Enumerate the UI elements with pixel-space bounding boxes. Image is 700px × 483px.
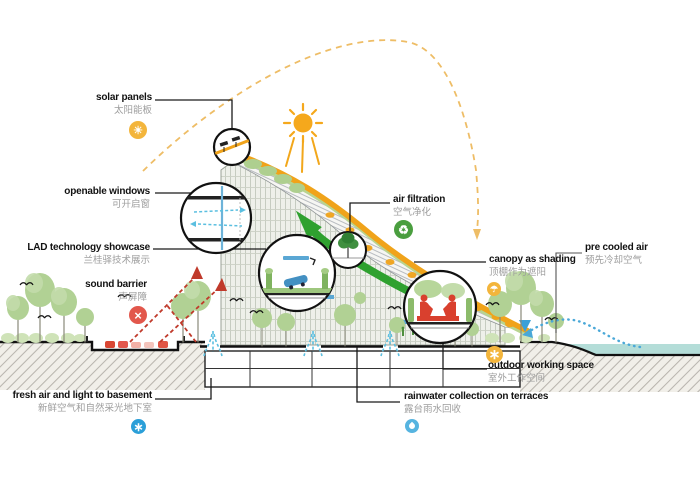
cars [105, 341, 168, 348]
sound-barrier-icon: × [129, 306, 147, 324]
detail-circle-windows [181, 183, 251, 253]
label-rainwater: rainwater collection on terraces 露台雨水回收 [404, 391, 548, 415]
label-canopy-shading: canopy as shading 顶棚作为遮阳 [489, 254, 576, 278]
droplet-shape [408, 422, 416, 430]
detail-circle-canopy [404, 271, 476, 343]
raindrop-icon [405, 419, 419, 433]
label-openable-windows: openable windows 可开启窗 [10, 186, 150, 210]
canopy-icon: ☂ [487, 282, 501, 296]
outdoor-working-icon: ∗ [486, 346, 503, 363]
sun-rays [286, 138, 319, 172]
solar-icon: ☀ [129, 121, 147, 139]
sun-icon [284, 104, 322, 172]
air-filtration-icon: ♻ [394, 220, 413, 239]
label-solar-panels: solar panels 太阳能板 [10, 92, 152, 116]
label-lad-showcase: LAD technology showcase 兰桂驿技术展示 [0, 242, 150, 266]
detail-circle-filtration [330, 232, 366, 268]
fresh-air-icon: ∗ [131, 419, 146, 434]
label-air-filtration: air filtration 空气净化 [393, 194, 445, 218]
detail-circle-solar [214, 129, 250, 165]
label-fresh-air-basement: fresh air and light to basement 新鲜空气和自然采… [0, 390, 152, 414]
label-outdoor-working: outdoor working space 室外工作空间 [488, 360, 594, 384]
architecture-section-diagram: solar panels 太阳能板 openable windows 可开启窗 … [0, 0, 700, 483]
basement [200, 347, 520, 388]
label-pre-cooled-air: pre cooled air 预先冷却空气 [585, 242, 648, 266]
label-sound-barrier: sound barrier 声屏障 [10, 279, 147, 303]
detail-circle-showcase [259, 235, 335, 311]
